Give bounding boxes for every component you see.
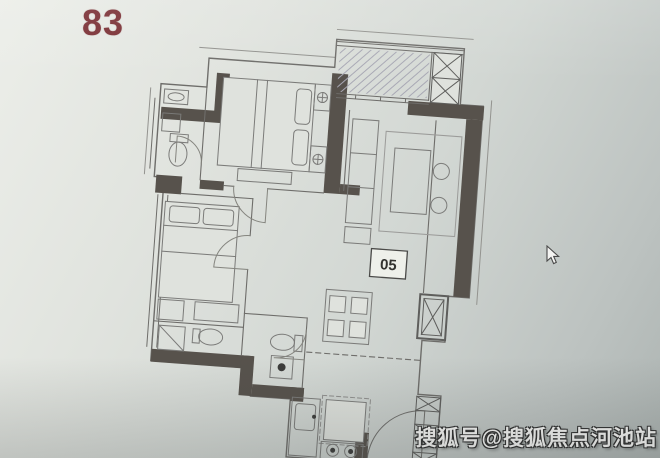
unit-number-badge: 05 [369,249,407,280]
bathroom-left-icon [158,325,224,354]
dining-set-icon [323,289,373,344]
mouse-cursor-icon [546,245,564,267]
balcony-floor-hatch [337,48,430,98]
master-cabinet-icon [237,169,292,185]
watermark-text: 搜狐号@搜狐焦点河池站 [416,422,657,452]
second-bed-icon [158,201,239,302]
elevator-shaft-icon [417,294,448,340]
bedside-cabinet-icon [157,299,239,325]
sofa-icon [344,119,379,245]
floor-plan: 05 [0,0,660,458]
coffee-table-icon [379,131,462,236]
floor-plan-photo: 83 [0,0,660,458]
unit-number-label: 05 [379,256,397,274]
ac-platform-icon [430,53,462,105]
master-bed-icon [217,77,315,172]
kitchen-sink-icon [288,397,320,457]
kitchen-island-icon [319,395,370,446]
bathroom-top-icon [159,89,191,167]
